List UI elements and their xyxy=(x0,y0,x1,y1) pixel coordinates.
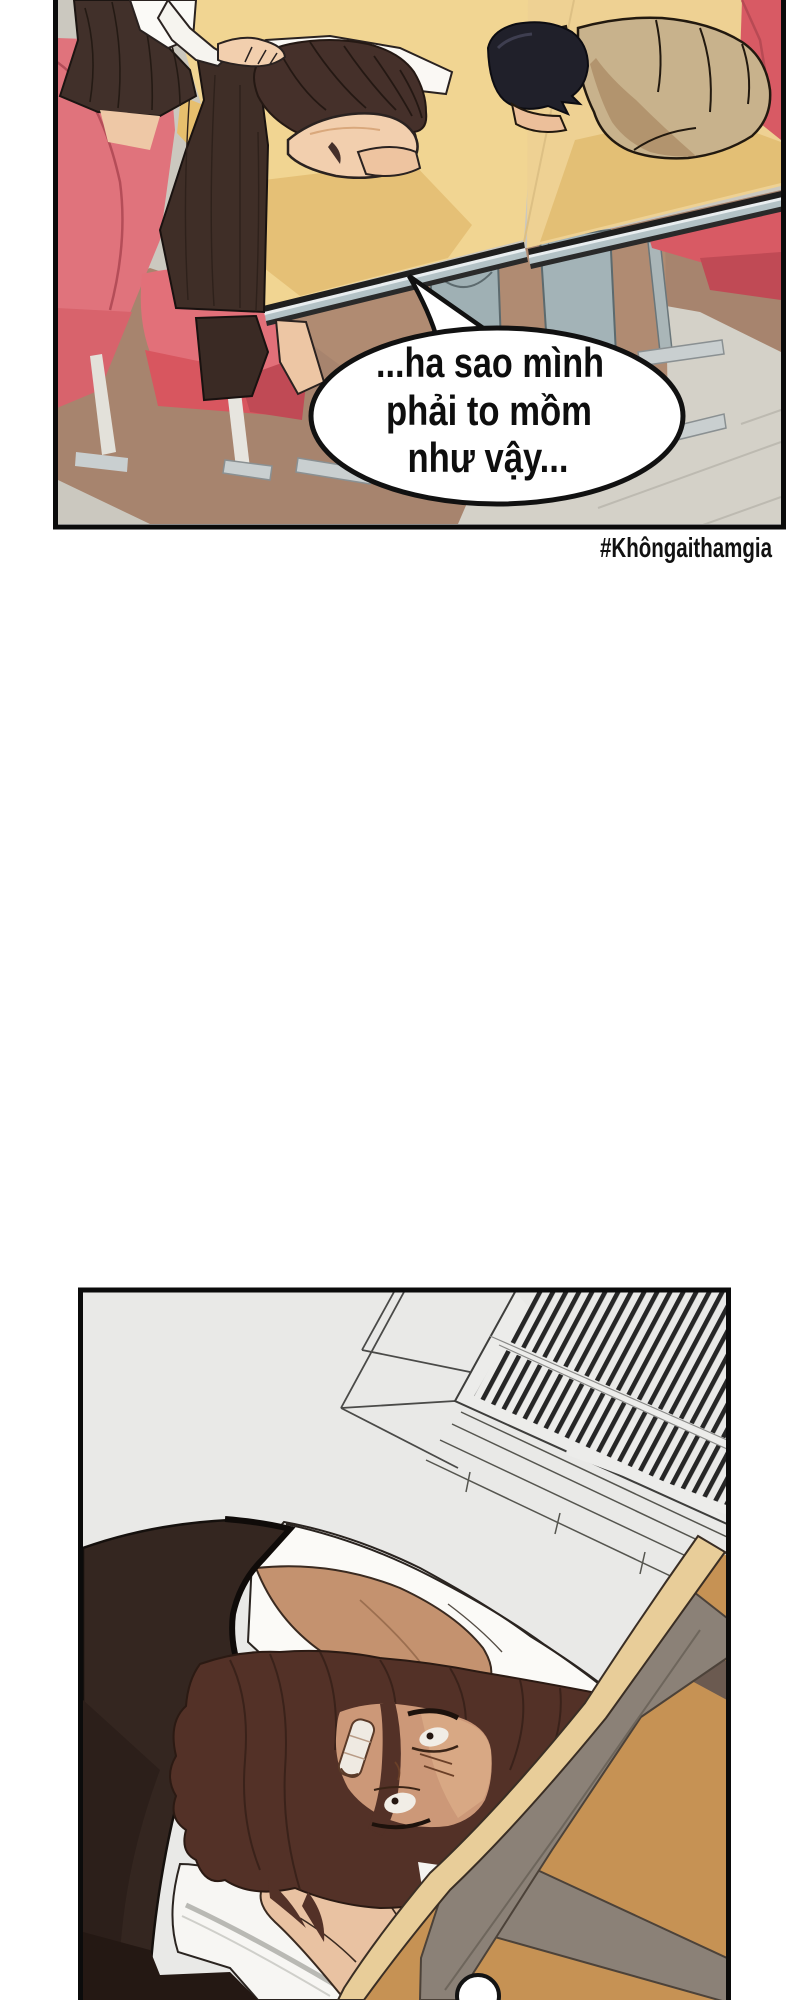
svg-text:phải to mồm: phải to mồm xyxy=(386,387,592,434)
svg-text:#Khôngaithamgia: #Khôngaithamgia xyxy=(600,532,772,563)
svg-text:như vậy...: như vậy... xyxy=(408,434,569,481)
svg-text:...ha sao mình: ...ha sao mình xyxy=(376,339,604,386)
